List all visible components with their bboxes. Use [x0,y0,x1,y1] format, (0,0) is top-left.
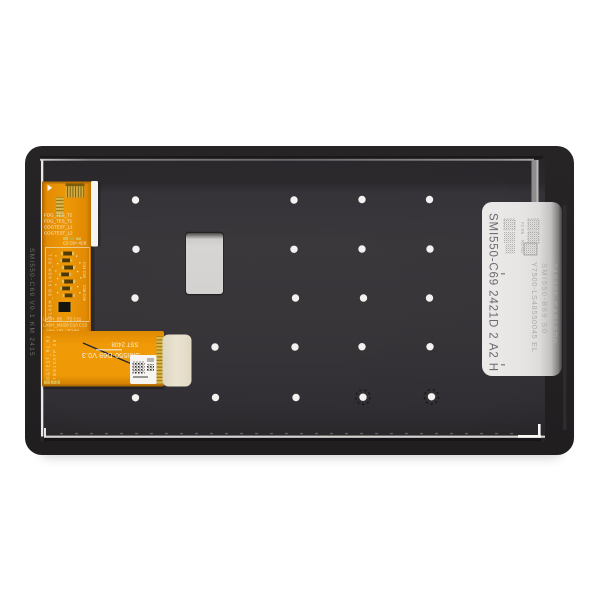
svg-text:COGTEST_L1: COGTEST_L1 [44,225,73,230]
svg-text:C38 C39: C38 C39 [82,285,87,302]
svg-text:LASH_M1S0 C10 C13: LASH_M1S0 C10 C13 [43,323,87,328]
svg-text:C2 C6+ 4C8: C2 C6+ 4C8 [63,241,87,246]
svg-text:COGTEST_R1 R2: COGTEST_R1 R2 [46,335,51,384]
svg-text:FOG_TES_T2: FOG_TES_T2 [44,213,73,218]
svg-text:Y7500-LS48550045 EL: Y7500-LS48550045 EL [530,262,539,352]
svg-text:SST 2408: SST 2408 [111,341,139,347]
svg-text:LASH_B5 T2 C11: LASH_B5 T2 C11 [43,317,82,322]
svg-text:SMI550-B69 S0: SMI550-B69 S0 [540,263,549,333]
svg-text:R4 W2: R4 W2 [520,240,525,254]
svg-text:SMI550-C69 2421D 2 A2 H: SMI550-C69 2421D 2 A2 H [487,213,499,371]
svg-text:FLASH_SO FLASH_SCL: FLASH_SO FLASH_SCL [48,253,53,318]
svg-text:F2 R6: F2 R6 [520,222,525,235]
svg-text:C34 C35: C34 C35 [82,262,87,279]
svg-text:FOG_TES_T1: FOG_TES_T1 [44,219,73,224]
svg-text:SMI550-C69 V0.1 KM 2415: SMI550-C69 V0.1 KM 2415 [28,248,35,356]
svg-text:240305 CA016D0: 240305 CA016D0 [550,263,559,343]
svg-text:COGTEST_L2: COGTEST_L2 [44,231,73,236]
